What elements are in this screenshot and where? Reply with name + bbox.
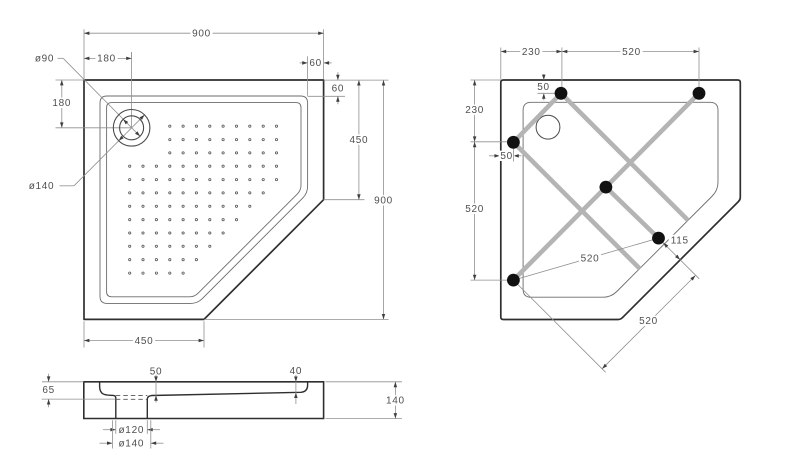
svg-text:900: 900 bbox=[192, 29, 211, 40]
svg-text:140: 140 bbox=[386, 396, 405, 407]
svg-text:520: 520 bbox=[581, 254, 600, 265]
svg-text:ø140: ø140 bbox=[119, 439, 145, 450]
svg-text:ø140: ø140 bbox=[29, 181, 55, 192]
svg-text:ø90: ø90 bbox=[35, 54, 54, 65]
svg-text:40: 40 bbox=[290, 366, 303, 377]
svg-text:900: 900 bbox=[374, 196, 393, 207]
svg-text:230: 230 bbox=[522, 47, 541, 58]
svg-text:520: 520 bbox=[639, 316, 658, 327]
svg-text:115: 115 bbox=[671, 235, 689, 246]
svg-text:ø120: ø120 bbox=[119, 425, 145, 436]
svg-text:65: 65 bbox=[42, 385, 55, 396]
svg-text:230: 230 bbox=[465, 105, 484, 116]
svg-text:450: 450 bbox=[350, 135, 369, 146]
svg-text:60: 60 bbox=[332, 83, 345, 94]
svg-text:50: 50 bbox=[500, 151, 513, 162]
svg-text:180: 180 bbox=[52, 98, 71, 109]
svg-text:60: 60 bbox=[309, 58, 322, 69]
svg-text:50: 50 bbox=[150, 367, 163, 378]
svg-text:450: 450 bbox=[135, 336, 154, 347]
svg-text:520: 520 bbox=[465, 204, 484, 215]
svg-text:520: 520 bbox=[622, 47, 641, 58]
svg-text:50: 50 bbox=[537, 82, 550, 93]
svg-text:180: 180 bbox=[97, 54, 116, 65]
